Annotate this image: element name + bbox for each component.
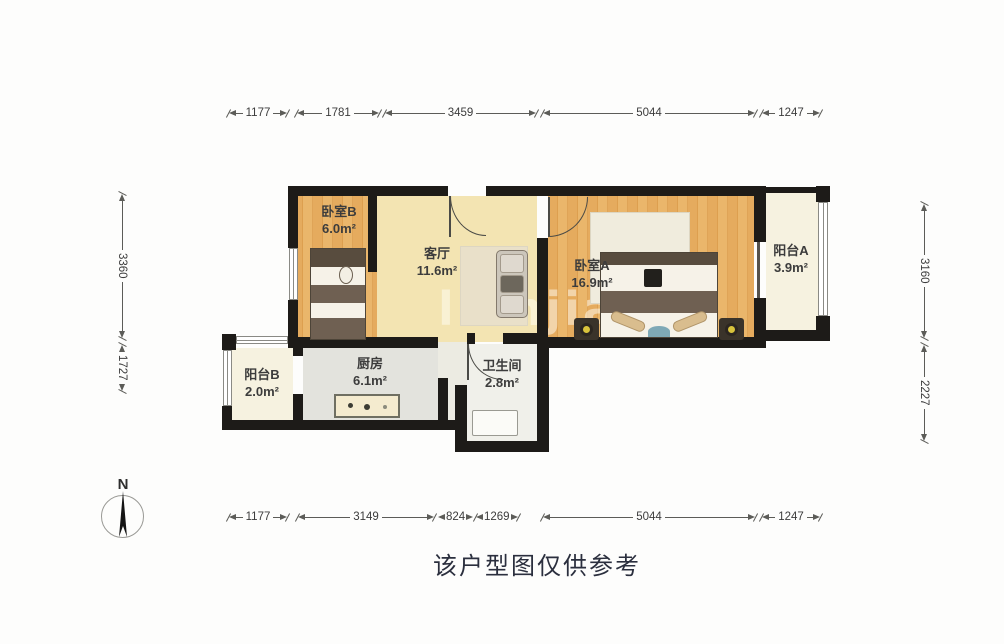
dim-value: 1177 [243, 107, 274, 119]
wall [455, 385, 467, 441]
dim-line [476, 113, 529, 114]
bathtub [472, 410, 518, 436]
dim-arrow [438, 514, 445, 520]
bed-pillow-round [339, 266, 353, 284]
sofa [496, 250, 528, 318]
dim-value: 1177 [243, 511, 274, 523]
dim-value: 1727 [116, 352, 128, 384]
dim-line [304, 113, 322, 114]
wall [222, 420, 467, 430]
dimension-right-2: 2227 [917, 344, 931, 442]
dimension-bottom-4: 1269 [475, 510, 530, 524]
stove-burner [364, 404, 370, 410]
dim-line [354, 113, 372, 114]
bed-blanket [601, 291, 717, 313]
wall [467, 333, 475, 344]
sofa-cushion [500, 275, 524, 294]
dim-line [665, 517, 748, 518]
bedroom-a-door-leaf [548, 197, 550, 237]
floor-plan-image: lianjia [0, 0, 1004, 644]
dim-line [392, 113, 445, 114]
dimension-right-1: 3160 [917, 203, 931, 339]
wall [222, 334, 236, 350]
stove-burner [383, 405, 387, 409]
dim-value: 1269 [483, 511, 511, 523]
window [289, 248, 298, 300]
room-area: 6.1m² [332, 373, 408, 390]
room-area: 2.0m² [229, 384, 295, 401]
dimension-bottom-6: 1247 [761, 510, 821, 524]
window-glass-line [823, 203, 824, 315]
room-label-bedroom-b: 卧室B 6.0m² [303, 204, 375, 238]
dimension-bottom-3: 824 [438, 510, 472, 524]
caption: 该户型图仅供参考 [402, 546, 672, 581]
dim-value: 1247 [775, 107, 807, 119]
dim-line [236, 113, 243, 114]
nightstand [719, 318, 744, 340]
room-area: 16.9m² [548, 275, 636, 292]
wall [754, 298, 766, 341]
dim-line [924, 409, 925, 434]
room-area: 11.6m² [392, 263, 482, 280]
wall [438, 378, 448, 420]
dim-value: 1781 [322, 107, 354, 119]
dim-value: 824 [445, 511, 466, 523]
wall [503, 333, 537, 344]
wall [288, 186, 298, 248]
window-glass-line [293, 249, 294, 299]
dim-value: 5044 [633, 511, 665, 523]
bed-headboard [311, 249, 365, 267]
wall [760, 187, 822, 193]
dimension-top-4: 5044 [542, 106, 756, 120]
dim-line [665, 113, 748, 114]
room-name: 阳台A [760, 243, 822, 260]
lamp [725, 323, 738, 336]
dimension-left-1: 3360 [115, 193, 129, 339]
room-label-balcony-a: 阳台A 3.9m² [760, 243, 822, 277]
dim-value: 3160 [918, 255, 930, 287]
dimension-top-2: 1781 [296, 106, 380, 120]
sofa-cushion [500, 254, 524, 273]
wall [288, 186, 448, 196]
dim-line [236, 517, 243, 518]
dim-value: 3459 [445, 107, 477, 119]
room-label-bathroom: 卫生间 2.8m² [468, 358, 536, 392]
dim-line [305, 517, 350, 518]
stove-burner [348, 403, 353, 408]
room-label-living-room: 客厅 11.6m² [392, 246, 482, 280]
window-glass-line [237, 340, 287, 341]
dim-line [550, 113, 633, 114]
dim-line [924, 211, 925, 255]
bed-blanket [311, 316, 365, 340]
window [236, 336, 288, 344]
room-label-kitchen: 厨房 6.1m² [332, 356, 408, 390]
sofa-cushion [500, 295, 524, 314]
nightstand [574, 318, 599, 340]
bed-sheet [311, 303, 365, 316]
wall [486, 186, 766, 196]
bed-blanket-stripe [311, 285, 365, 303]
dim-line [550, 517, 633, 518]
dimension-top-3: 3459 [384, 106, 537, 120]
room-label-balcony-b: 阳台B 2.0m² [229, 367, 295, 401]
dim-line [122, 282, 123, 331]
room-name: 客厅 [392, 246, 482, 263]
room-name: 阳台B [229, 367, 295, 384]
lamp [580, 323, 593, 336]
wall [537, 337, 549, 452]
dim-value: 5044 [633, 107, 665, 119]
room-label-bedroom-a: 卧室A 16.9m² [548, 258, 636, 292]
wall [222, 406, 232, 422]
wall [455, 441, 549, 452]
room-area: 2.8m² [468, 375, 536, 392]
compass: N [98, 476, 148, 542]
compass-north-label: N [98, 476, 148, 493]
dimension-top-5: 1247 [761, 106, 821, 120]
room-area: 6.0m² [303, 221, 375, 238]
bed-sheet [311, 267, 365, 285]
dim-value: 3360 [116, 250, 128, 282]
room-name: 卧室A [548, 258, 636, 275]
dim-line [122, 201, 123, 250]
dim-value: 3149 [350, 511, 382, 523]
dimension-bottom-2: 3149 [297, 510, 435, 524]
wall [754, 196, 766, 242]
bed-single [310, 248, 366, 340]
room-name: 厨房 [332, 356, 408, 373]
dimension-left-2: 1727 [115, 344, 129, 422]
bed-tray [644, 269, 662, 287]
wall [816, 186, 830, 202]
dimension-bottom-5: 5044 [542, 510, 756, 524]
dim-line [273, 517, 280, 518]
wall [537, 238, 548, 337]
entry-door-leaf [449, 196, 451, 237]
dimension-top-1: 1177 [228, 106, 288, 120]
dimension-bottom-1: 1177 [228, 510, 288, 524]
room-name: 卫生间 [468, 358, 536, 375]
dim-line [924, 287, 925, 331]
room-name: 卧室B [303, 204, 375, 221]
dim-value: 1247 [775, 511, 807, 523]
dim-line [273, 113, 280, 114]
dim-line [924, 352, 925, 377]
wall [293, 348, 303, 356]
bed-throw [648, 326, 670, 337]
dim-arrow [466, 514, 473, 520]
window-glass-line [227, 351, 228, 405]
room-area: 3.9m² [760, 260, 822, 277]
dim-value: 2227 [918, 377, 930, 409]
dim-line [382, 517, 427, 518]
